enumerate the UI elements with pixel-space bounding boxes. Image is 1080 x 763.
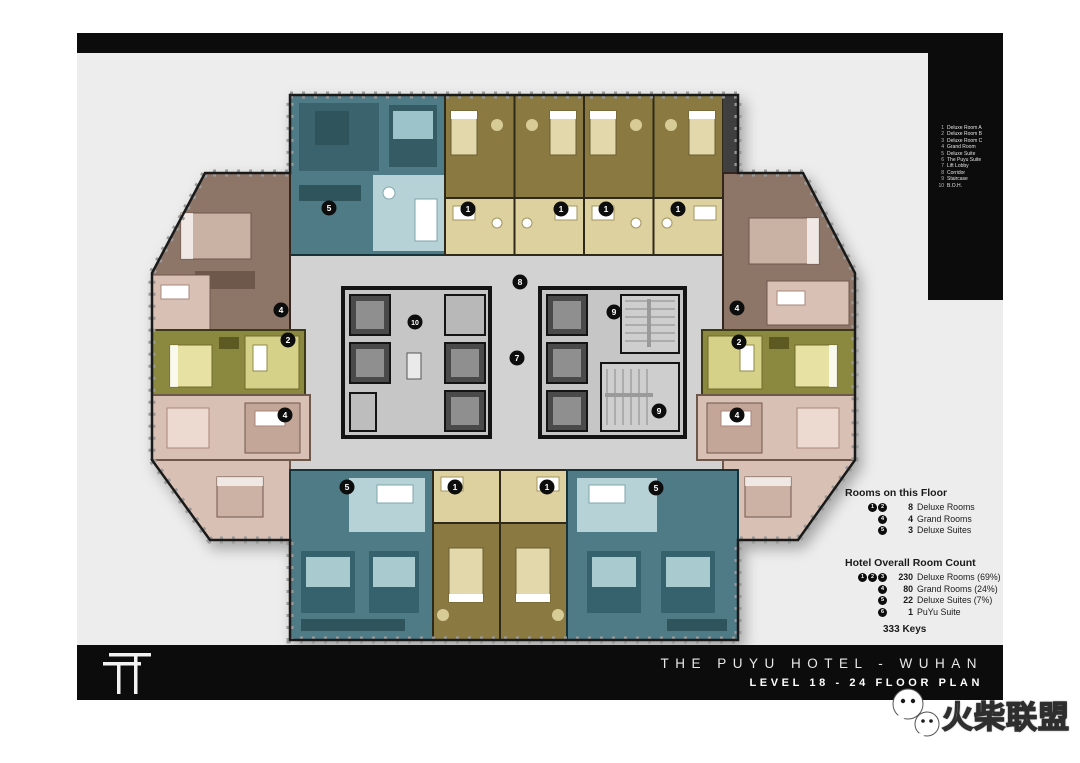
core-lifts-boh — [343, 288, 490, 437]
room-marker: 9 — [607, 305, 622, 320]
floor-stats: Rooms on this Floor 12 8 Deluxe Rooms 4 … — [845, 487, 1010, 537]
floor-stats-title: Rooms on this Floor — [845, 487, 1010, 499]
room-deluxe-suite-nw — [290, 95, 445, 255]
svg-text:1: 1 — [453, 482, 458, 492]
badge: 4 — [878, 585, 887, 594]
svg-text:1: 1 — [559, 204, 564, 214]
staircase-upper — [621, 295, 679, 353]
stat-row: 5 22 Deluxe Suites (7%) — [845, 595, 1010, 607]
title-bar: THE PUYU HOTEL - WUHAN LEVEL 18 - 24 FLO… — [77, 645, 1003, 700]
room-marker: 8 — [513, 275, 528, 290]
room-marker: 5 — [340, 480, 355, 495]
room-deluxe-suite-sw — [290, 470, 433, 640]
badge: 3 — [878, 573, 887, 582]
room-marker: 1 — [554, 202, 569, 217]
room-marker: 1 — [671, 202, 686, 217]
svg-text:4: 4 — [283, 410, 288, 420]
watermark-text: 火柴联盟 — [942, 692, 1070, 737]
badge: 5 — [878, 596, 887, 605]
room-marker: 10 — [408, 315, 423, 330]
svg-text:2: 2 — [737, 337, 742, 347]
svg-text:9: 9 — [612, 307, 617, 317]
badge: 1 — [858, 573, 867, 582]
badge: 2 — [878, 503, 887, 512]
svg-text:5: 5 — [327, 203, 332, 213]
stat-row: 4 80 Grand Rooms (24%) — [845, 584, 1010, 596]
svg-text:10: 10 — [411, 320, 419, 327]
room-marker: 2 — [281, 333, 296, 348]
svg-text:1: 1 — [676, 204, 681, 214]
svg-text:8: 8 — [518, 277, 523, 287]
room-deluxe-b-east — [702, 330, 855, 395]
svg-text:9: 9 — [657, 406, 662, 416]
badge: 5 — [878, 526, 887, 535]
hotel-stats-title: Hotel Overall Room Count — [845, 557, 1010, 569]
room-marker: 4 — [730, 408, 745, 423]
watermark: 火柴联盟 — [886, 686, 1076, 756]
badge: 4 — [878, 515, 887, 524]
svg-text:4: 4 — [735, 303, 740, 313]
stat-row: 5 3 Deluxe Suites — [845, 525, 1010, 537]
room-grand-west2 — [152, 395, 310, 460]
room-grand-se — [723, 460, 855, 540]
legend-item: 10B.O.H. — [935, 183, 999, 189]
hotel-title: THE PUYU HOTEL - WUHAN — [660, 656, 983, 671]
svg-text:4: 4 — [735, 410, 740, 420]
hotel-stats: Hotel Overall Room Count 123 230 Deluxe … — [845, 557, 1010, 635]
room-grand-east2 — [697, 395, 855, 460]
svg-text:1: 1 — [604, 204, 609, 214]
stat-row: 12 8 Deluxe Rooms — [845, 502, 1010, 514]
total-keys: 333 Keys — [883, 624, 1010, 635]
badge: 2 — [868, 573, 877, 582]
top-black-bar — [77, 33, 1003, 53]
legend-panel: 1Deluxe Room A 2Deluxe Room B 3Deluxe Ro… — [928, 53, 1003, 300]
room-marker: 1 — [599, 202, 614, 217]
room-marker: 4 — [278, 408, 293, 423]
svg-text:7: 7 — [515, 353, 520, 363]
room-marker: 5 — [649, 481, 664, 496]
room-deluxe-suite-se — [567, 470, 738, 640]
room-marker: 4 — [730, 301, 745, 316]
room-marker: 4 — [274, 303, 289, 318]
badge: 1 — [868, 503, 877, 512]
svg-text:1: 1 — [466, 204, 471, 214]
room-grand-nw — [152, 173, 290, 330]
room-marker: 1 — [540, 480, 555, 495]
stat-row: 4 4 Grand Rooms — [845, 514, 1010, 526]
room-marker: 7 — [510, 351, 525, 366]
svg-text:2: 2 — [286, 335, 291, 345]
wechat-icon — [886, 686, 946, 746]
puyu-logo-icon — [99, 651, 159, 697]
room-marker: 1 — [448, 480, 463, 495]
room-marker: 5 — [322, 201, 337, 216]
rooms-deluxe-north — [445, 95, 723, 255]
svg-text:4: 4 — [279, 305, 284, 315]
svg-text:1: 1 — [545, 482, 550, 492]
room-grand-sw — [152, 460, 290, 540]
rooms-deluxe-south — [433, 470, 567, 640]
svg-text:5: 5 — [654, 483, 659, 493]
room-marker: 2 — [732, 335, 747, 350]
badge: 6 — [878, 608, 887, 617]
stat-row: 123 230 Deluxe Rooms (69%) — [845, 572, 1010, 584]
staircase-lower — [601, 363, 679, 431]
svg-text:5: 5 — [345, 482, 350, 492]
presentation-sheet: 5 1 1 1 1 8 10 7 9 9 4 2 4 4 2 4 5 1 1 5… — [0, 0, 1080, 763]
room-marker: 1 — [461, 202, 476, 217]
stat-row: 6 1 PuYu Suite — [845, 607, 1010, 619]
room-marker: 9 — [652, 404, 667, 419]
